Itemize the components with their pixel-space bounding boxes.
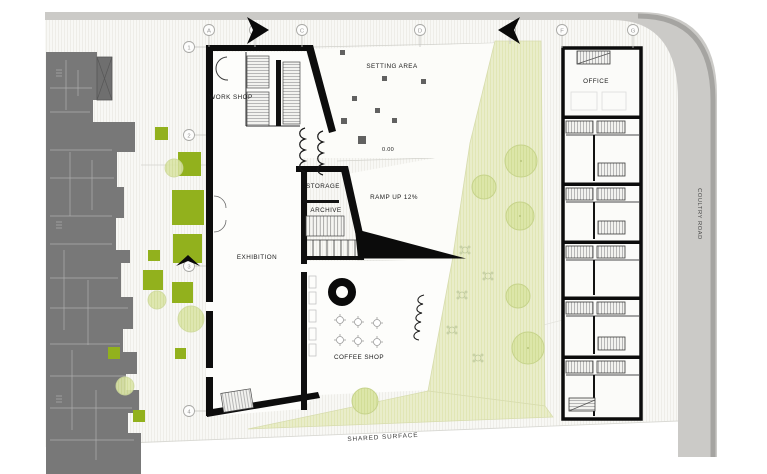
planter-square <box>172 282 193 303</box>
grid-number: 1 <box>187 45 190 51</box>
stair-core-wall <box>276 60 281 126</box>
coffee-north-wall <box>301 256 364 260</box>
planter-square <box>143 270 163 290</box>
archive-racks <box>306 216 344 236</box>
grid-number: 2 <box>187 133 190 139</box>
planter-square <box>108 347 120 359</box>
north-wall <box>206 45 311 51</box>
workshop-label: WORK SHOP <box>209 94 252 101</box>
grid-letter: A <box>207 28 211 34</box>
office-label: OFFICE <box>583 78 609 85</box>
coffee-shop-label: COFFEE SHOP <box>334 354 384 361</box>
existing-building-core <box>97 57 112 100</box>
setting-area-label: SETTING AREA <box>366 63 418 70</box>
road-label: COULTRY ROAD <box>696 188 702 240</box>
grid-letter: C <box>300 28 305 34</box>
planter-square <box>133 410 145 422</box>
planter-square <box>172 190 204 225</box>
stair-flight <box>283 62 300 124</box>
archive-label: ARCHIVE <box>310 207 341 214</box>
floor-plan-drawing: COULTRY ROAD <box>0 0 767 474</box>
planter-square <box>148 250 160 261</box>
level-label: 0.00 <box>382 147 394 153</box>
grid-letter: F <box>560 28 564 34</box>
residential-strip-building <box>563 48 641 419</box>
exhibition-label: EXHIBITION <box>237 254 277 261</box>
grid-letter: D <box>418 28 422 34</box>
planter-square <box>175 348 186 359</box>
grid-letter: G <box>631 28 636 34</box>
planter-square <box>155 127 168 140</box>
floor-plan-canvas: COULTRY ROAD <box>0 0 767 474</box>
storage-label: STORAGE <box>306 183 340 190</box>
ramp-label: RAMP UP 12% <box>370 194 418 201</box>
